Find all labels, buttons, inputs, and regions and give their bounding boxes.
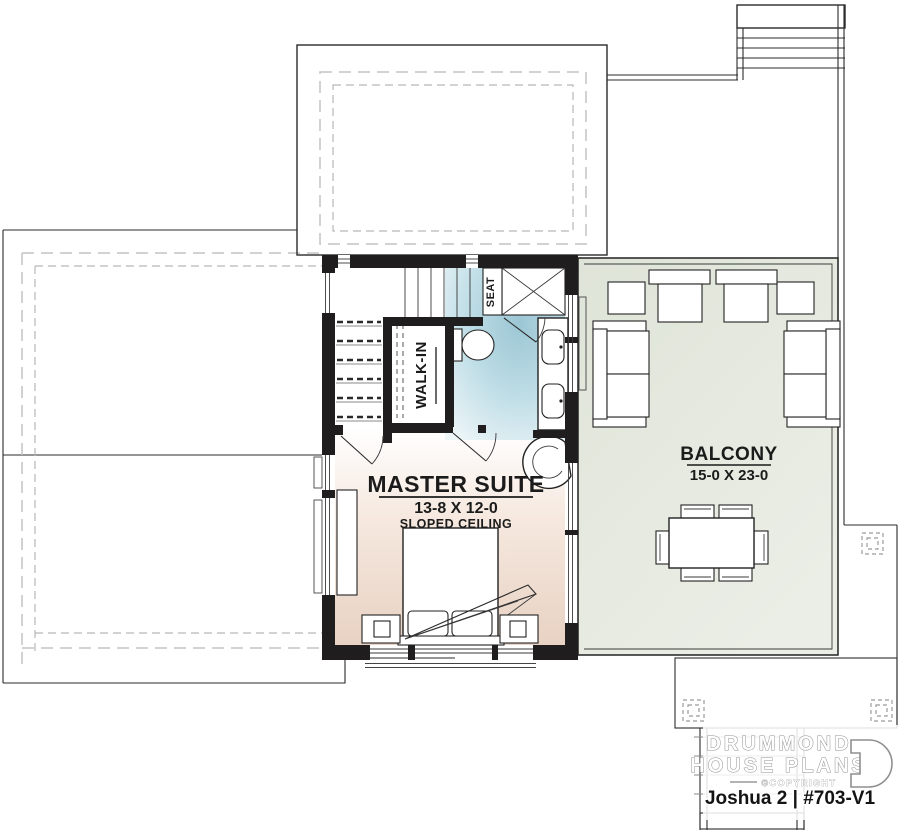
copyright-label: ©COPYRIGHT (761, 778, 836, 788)
nightstand (362, 615, 400, 643)
side-table (608, 282, 645, 314)
armchair (716, 270, 777, 322)
balcony-dimensions: 15-0 X 23-0 (690, 467, 768, 484)
vanity (538, 318, 568, 430)
shower (502, 268, 565, 315)
plan-title: Joshua 2 | #703-V1 (705, 788, 876, 809)
sofa-right (784, 321, 840, 427)
pillow (408, 611, 448, 636)
logo-block: DRUMMOND HOUSE PLANS ©COPYRIGHT Joshua 2… (690, 725, 900, 820)
floor-plan-sheet: MASTER SUITE 13-8 X 12-0 SLOPED CEILING … (0, 0, 900, 830)
floor-plan-drawing: MASTER SUITE 13-8 X 12-0 SLOPED CEILING … (0, 0, 900, 830)
master-suite-title: MASTER SUITE (367, 471, 544, 497)
sofa-left (593, 321, 649, 427)
walk-in-label: WALK-IN (413, 341, 430, 409)
nightstand (500, 615, 538, 643)
roof-outline-top (297, 45, 738, 255)
master-suite-dimensions: 13-8 X 12-0 (414, 500, 498, 517)
master-suite-note: SLOPED CEILING (400, 517, 513, 531)
brand-name-line2: HOUSE PLANS (690, 755, 867, 777)
walk-in-closet (397, 324, 403, 418)
dining-table (669, 518, 754, 568)
toilet (450, 329, 494, 361)
dresser (337, 490, 357, 595)
armchair (649, 270, 710, 322)
brand-name-line1: DRUMMOND (706, 733, 851, 755)
side-table (777, 282, 814, 314)
pillow (452, 611, 492, 636)
shower-seat-label: SEAT (485, 277, 497, 308)
balcony-title: BALCONY (680, 444, 777, 465)
